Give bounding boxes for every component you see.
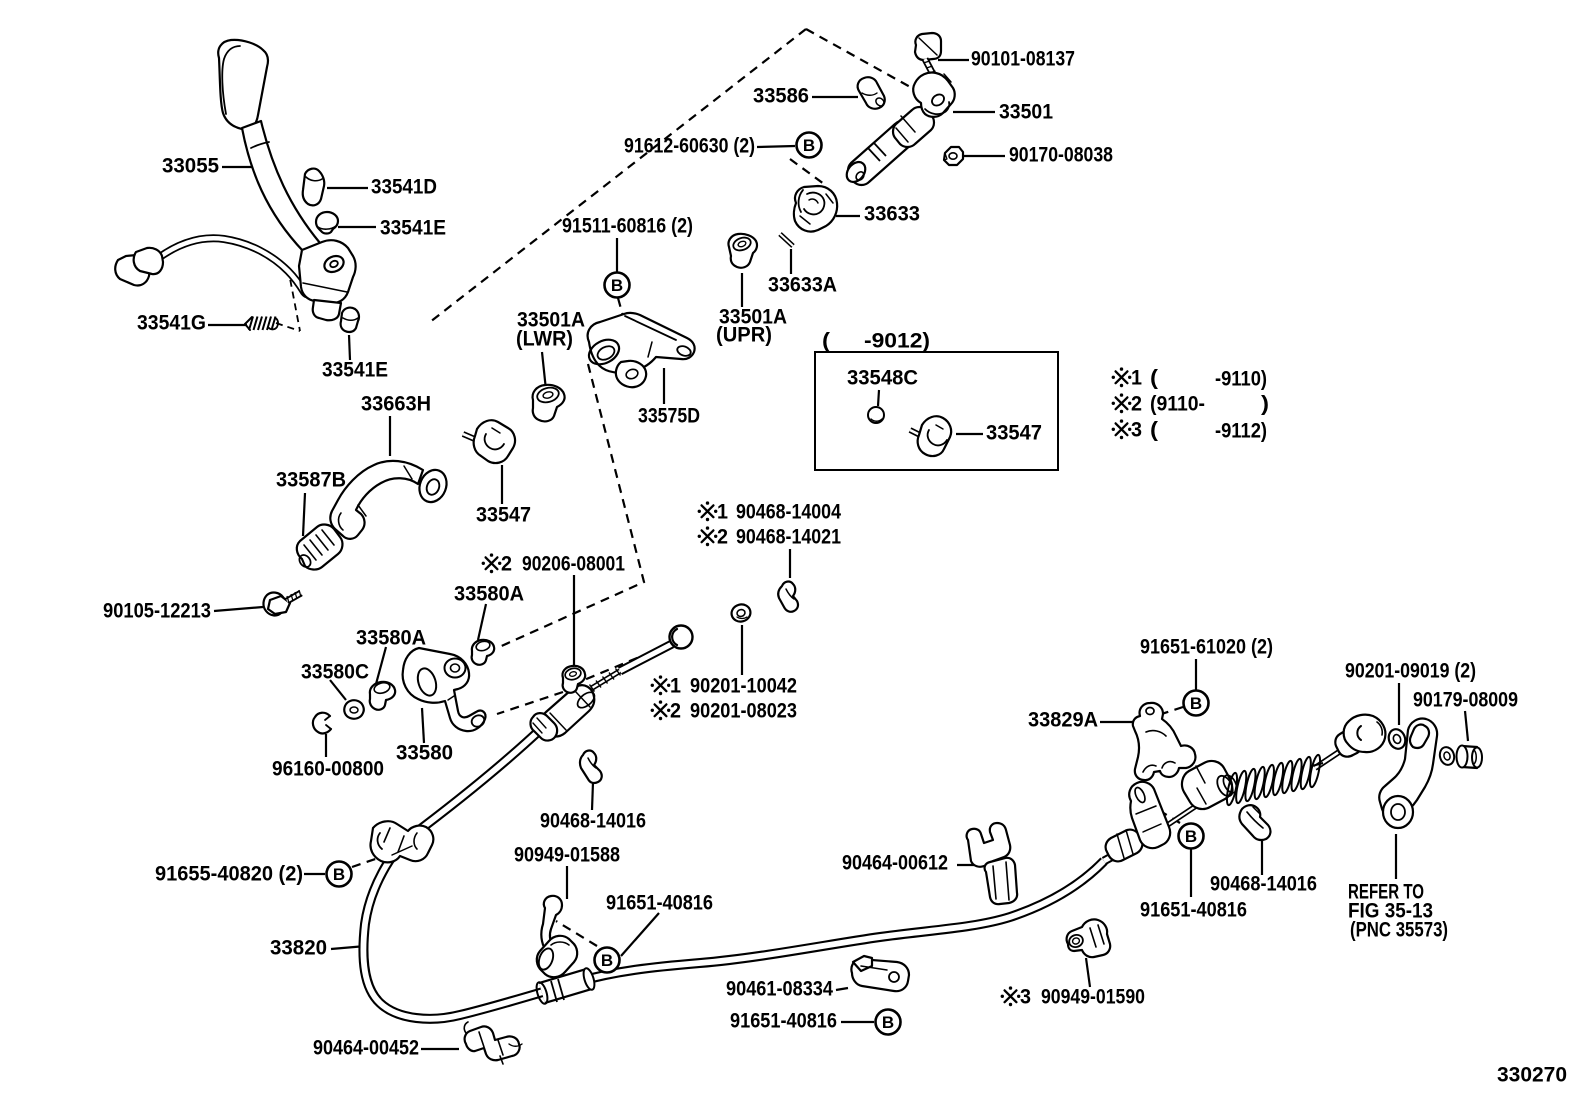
svg-text:(PNC 35573): (PNC 35573) (1350, 919, 1448, 942)
svg-text:(LWR): (LWR) (516, 328, 573, 351)
svg-text:91651-40816: 91651-40816 (1140, 899, 1247, 922)
svg-text:1: 1 (1131, 367, 1142, 390)
svg-text:91651-40816: 91651-40816 (606, 892, 713, 915)
svg-text:33548C: 33548C (847, 367, 918, 390)
svg-text:90464-00612: 90464-00612 (842, 852, 948, 875)
svg-text:90170-08038: 90170-08038 (1009, 144, 1113, 167)
svg-text:): ) (1261, 393, 1269, 416)
svg-text:33575D: 33575D (638, 405, 700, 428)
svg-text:33541E: 33541E (322, 359, 388, 382)
svg-text:90468-14021: 90468-14021 (736, 526, 841, 549)
svg-text:B: B (1190, 694, 1202, 713)
svg-text:-9012): -9012) (864, 330, 930, 353)
svg-text:90468-14004: 90468-14004 (736, 501, 841, 524)
svg-text:90461-08334: 90461-08334 (726, 978, 833, 1001)
svg-text:-9112): -9112) (1215, 420, 1267, 443)
svg-text:33055: 33055 (162, 155, 219, 178)
svg-text:90468-14016: 90468-14016 (1210, 873, 1317, 896)
svg-text:90201-08023: 90201-08023 (690, 700, 797, 723)
svg-text:33501: 33501 (999, 101, 1053, 124)
svg-text:90101-08137: 90101-08137 (971, 48, 1075, 71)
svg-text:2: 2 (1131, 393, 1142, 416)
svg-text:B: B (601, 951, 613, 970)
svg-text:33633: 33633 (864, 203, 920, 226)
svg-text:91651-61020 (2): 91651-61020 (2) (1140, 636, 1273, 659)
svg-text:1: 1 (670, 675, 681, 698)
svg-text:90179-08009: 90179-08009 (1413, 689, 1518, 712)
svg-text:91651-40816: 91651-40816 (730, 1010, 837, 1033)
svg-text:(: ( (822, 330, 830, 353)
svg-text:B: B (1185, 827, 1197, 846)
svg-text:91612-60630 (2): 91612-60630 (2) (624, 135, 755, 158)
svg-text:330270: 330270 (1497, 1064, 1567, 1087)
svg-text:91655-40820 (2): 91655-40820 (2) (155, 863, 303, 886)
svg-text:33580A: 33580A (454, 583, 524, 606)
svg-text:96160-00800: 96160-00800 (272, 758, 384, 781)
svg-text:33580A: 33580A (356, 627, 426, 650)
svg-text:2: 2 (670, 700, 681, 723)
svg-text:90464-00452: 90464-00452 (313, 1037, 419, 1060)
svg-text:33586: 33586 (753, 85, 809, 108)
svg-text:90201-09019 (2): 90201-09019 (2) (1345, 660, 1476, 683)
svg-text:90468-14016: 90468-14016 (540, 810, 646, 833)
svg-text:90206-08001: 90206-08001 (522, 553, 625, 576)
svg-text:B: B (611, 276, 623, 295)
svg-text:2: 2 (717, 526, 728, 549)
svg-text:(: ( (1150, 419, 1158, 442)
svg-text:3: 3 (1020, 986, 1031, 1009)
svg-text:33663H: 33663H (361, 393, 431, 416)
svg-text:90949-01590: 90949-01590 (1041, 986, 1145, 1009)
svg-text:91511-60816 (2): 91511-60816 (2) (562, 215, 693, 238)
svg-text:(9110-: (9110- (1150, 393, 1205, 416)
svg-text:33541E: 33541E (380, 217, 446, 240)
svg-text:-9110): -9110) (1215, 368, 1267, 391)
svg-text:33580: 33580 (396, 742, 453, 765)
svg-text:33580C: 33580C (301, 661, 369, 684)
svg-text:90201-10042: 90201-10042 (690, 675, 797, 698)
svg-text:90949-01588: 90949-01588 (514, 844, 620, 867)
svg-text:(UPR): (UPR) (716, 324, 772, 347)
svg-text:33587B: 33587B (276, 469, 346, 492)
svg-text:33633A: 33633A (768, 274, 837, 297)
svg-text:33541G: 33541G (137, 312, 206, 335)
svg-text:33547: 33547 (986, 422, 1042, 445)
svg-text:33541D: 33541D (371, 176, 437, 199)
svg-text:3: 3 (1131, 419, 1142, 442)
svg-text:(: ( (1150, 367, 1158, 390)
svg-text:90105-12213: 90105-12213 (103, 600, 211, 623)
svg-text:B: B (333, 865, 345, 884)
svg-text:33547: 33547 (476, 504, 531, 527)
svg-text:B: B (803, 136, 815, 155)
svg-text:1: 1 (717, 501, 728, 524)
svg-text:33820: 33820 (270, 937, 327, 960)
svg-text:B: B (882, 1013, 894, 1032)
svg-text:2: 2 (501, 553, 512, 576)
svg-text:33829A: 33829A (1028, 709, 1098, 732)
